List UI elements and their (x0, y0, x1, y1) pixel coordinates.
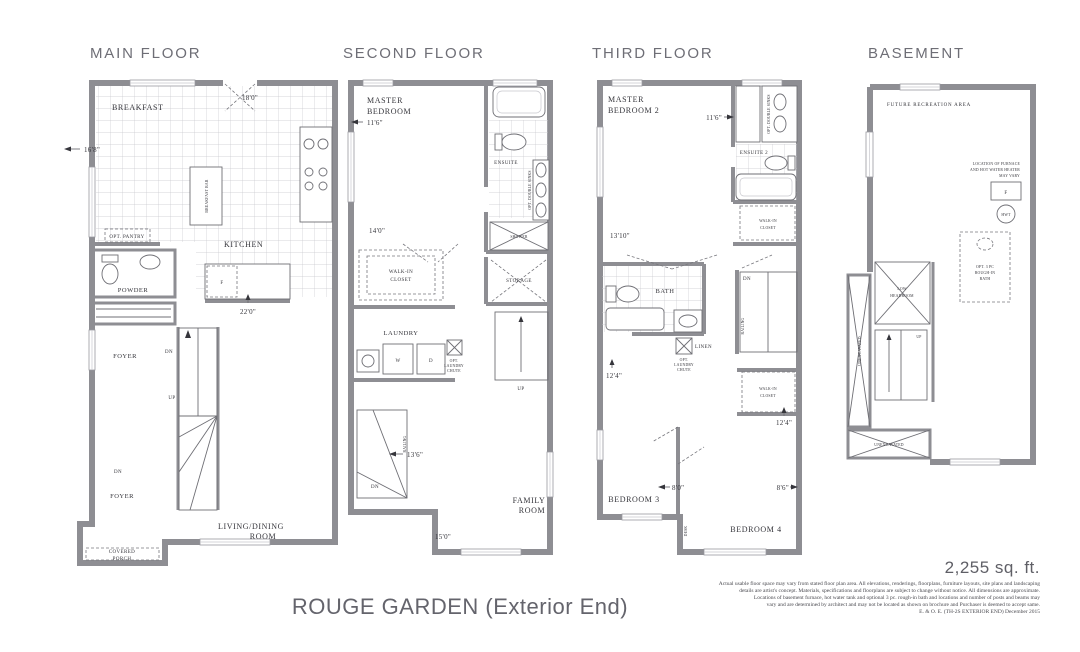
dn-label: DN (743, 277, 751, 282)
living-dining-label-1: LIVING/DINING (218, 522, 284, 531)
dim-breakfast-width: 16'8" (84, 146, 100, 154)
main-floor-panel: MAIN FLOOR BREAKFAST BAR (50, 45, 342, 572)
second-floor-plan: OPT. DOUBLE SINKS ENSUITE SHOWER WALK-IN… (343, 72, 575, 572)
dn-upper-label: DN (165, 350, 173, 355)
master2-label-1: MASTER (608, 95, 644, 104)
plan-title: ROUGE GARDEN (Exterior End) (0, 594, 920, 620)
fridge-label: F (220, 281, 223, 286)
dim-breakfast-door: 18'0" (242, 94, 258, 102)
covered-porch-label-1: COVERED (109, 550, 135, 555)
railing-label: RAILING (741, 317, 745, 334)
third-floor-title: THIRD FLOOR (592, 45, 824, 65)
third-floor-plan: OPT. DOUBLE SINKS ENSUITE 2 WALK-IN CLOS… (592, 72, 824, 572)
linen-label: LINEN (695, 345, 712, 350)
up-label: UP (517, 387, 524, 392)
master-door-swings (403, 244, 458, 262)
chute-label-1: OPT. (680, 358, 689, 362)
breakfast-label: BREAKFAST (112, 103, 163, 112)
chute-label-2: LAUNDRY (674, 363, 694, 367)
wic-upper-label-2: CLOSET (760, 226, 776, 230)
living-dining-label-2: ROOM (250, 532, 276, 541)
linen-chute (676, 338, 692, 354)
dim-bedroom4: 8'6" (777, 484, 789, 492)
storage-label: STORAGE (506, 279, 532, 284)
dim-hall: 12'4" (606, 372, 622, 380)
shower-label: SHOWER (510, 235, 527, 239)
dim-master2-width: 11'6" (706, 114, 722, 122)
dn-label: DN (371, 485, 379, 490)
chute-label-3: CHUTE (447, 369, 461, 373)
opt-pantry-label: OPT. PANTRY (109, 235, 144, 240)
dim-arrow-hall (610, 359, 615, 368)
opt-double-sinks-label: OPT. DOUBLE SINKS (528, 170, 532, 210)
chute-label-3: CHUTE (677, 368, 691, 372)
disclaimer-line-1: Actual usable floor space may vary from … (719, 581, 1040, 588)
foyer-upper-label: FOYER (113, 353, 137, 360)
hwt-label: HWT (1001, 213, 1011, 217)
master-bedroom-label-2: BEDROOM (367, 107, 411, 116)
ensuite2-label: ENSUITE 2 (740, 151, 768, 156)
main-floor-title: MAIN FLOOR (50, 45, 342, 65)
second-floor-title: SECOND FLOOR (343, 45, 575, 65)
breakfast-bar-label: BREAKFAST BAR (205, 179, 209, 212)
family-room-label-1: FAMILY (513, 496, 546, 505)
walk-in-closet-upper (740, 206, 795, 240)
stairs-arrival (736, 86, 760, 142)
dim-master-length: 14'0" (369, 227, 385, 235)
stairs-up (495, 312, 548, 380)
washer-label: W (395, 359, 400, 364)
up-label: UP (168, 396, 175, 401)
furnace-label: F (1004, 191, 1007, 196)
kitchen-counter-right (300, 127, 332, 222)
dim-master2-length: 13'10" (610, 232, 630, 240)
wic-lower-label-2: CLOSET (760, 394, 776, 398)
kitchen-label: KITCHEN (224, 240, 263, 249)
square-footage: 2,255 sq. ft. (719, 558, 1040, 578)
coat-closet (96, 309, 171, 317)
walk-in-closet-lower (742, 372, 795, 412)
stairs-up (875, 330, 927, 400)
dim-bedroom3: 8'0" (672, 484, 684, 492)
up-label: UP (916, 335, 921, 339)
opt-bath-label-1: OPT. 3 PC (976, 265, 994, 269)
low-headroom-box (875, 262, 930, 324)
wic-upper-label-1: WALK-IN (759, 219, 777, 223)
walk-in-closet (359, 250, 443, 300)
basement-plan: UNEXCAVATED UNEXCAVATED LOW HEADROOM UP … (845, 72, 1047, 472)
wic-label-2: CLOSET (390, 278, 411, 283)
stairs-up (179, 328, 217, 416)
second-floor-panel: SECOND FLOOR OPT. D (343, 45, 575, 572)
desk-label: DESK (684, 526, 688, 537)
wic-lower-label-1: WALK-IN (759, 387, 777, 391)
bedroom4-label: BEDROOM 4 (730, 525, 781, 534)
bathtub-icon (493, 87, 545, 117)
basement-panel: BASEMENT UNEXCAVATED UNEXCAVATED LOW HEA… (845, 45, 1047, 472)
dim-arrow-bed3 (658, 485, 670, 490)
master-bedroom-label-1: MASTER (367, 96, 403, 105)
main-floor-plan: BREAKFAST BAR F OPT. PANTRY (50, 72, 342, 572)
opt-double-sinks-label: OPT. DOUBLE SINKS (767, 94, 771, 134)
furnace-note-2: AND HOT WATER HEATER (970, 168, 1020, 172)
covered-porch-label-2: PORCH (113, 557, 132, 562)
dn-lower-label: DN (114, 470, 122, 475)
furnace-note-3: MAY VARY (999, 174, 1020, 178)
chute-label-1: OPT. (450, 359, 459, 363)
family-room-label-2: ROOM (519, 506, 545, 515)
opt-bath-label-2: ROUGH-IN (975, 271, 995, 275)
dim-closet: 12'4" (776, 419, 792, 427)
unexcavated-left-label: UNEXCAVATED (858, 336, 862, 366)
unexcavated-bottom-label: UNEXCAVATED (874, 443, 904, 447)
dim-family: 15'0" (435, 533, 451, 541)
floor-plan-sheet: MAIN FLOOR BREAKFAST BAR (0, 0, 1080, 652)
wic-label-1: WALK-IN (389, 270, 413, 275)
bath-label: BATH (656, 288, 675, 295)
dim-master-width: 11'6" (367, 119, 383, 127)
basement-title: BASEMENT (845, 45, 1047, 65)
master2-label-2: BEDROOM 2 (608, 106, 659, 115)
low-headroom-label-1: LOW (897, 287, 906, 291)
vanity-sinks (533, 160, 549, 220)
stairs-down (740, 272, 797, 352)
furnace-note-1: LOCATION OF FURNACE (973, 162, 1021, 166)
third-floor-panel: THIRD FLOOR OPT. DOUBLE SINKS ENSUITE 2 (592, 45, 824, 572)
ensuite-label: ENSUITE (494, 161, 518, 166)
chute-label-2: LAUNDRY (444, 364, 464, 368)
kitchen-counter-bottom (205, 264, 290, 299)
dryer-label: D (429, 359, 433, 364)
bathtub-icon (736, 174, 796, 200)
powder-label: POWDER (118, 287, 149, 294)
toilet-icon (765, 156, 795, 170)
low-headroom-label-2: HEADROOM (890, 294, 914, 298)
future-recreation-label: FUTURE RECREATION AREA (887, 103, 971, 108)
stairs-winder (179, 416, 217, 510)
toilet-icon (495, 134, 526, 150)
opt-bath-label-3: BATH (980, 277, 991, 281)
dim-kitchen: 22'0" (240, 308, 256, 316)
bedroom3-label: BEDROOM 3 (608, 495, 659, 504)
foyer-lower-label: FOYER (110, 493, 134, 500)
dim-stair: 13'6" (407, 451, 423, 459)
laundry-label: LAUNDRY (384, 330, 419, 337)
railing-label: RAILING (403, 435, 407, 452)
